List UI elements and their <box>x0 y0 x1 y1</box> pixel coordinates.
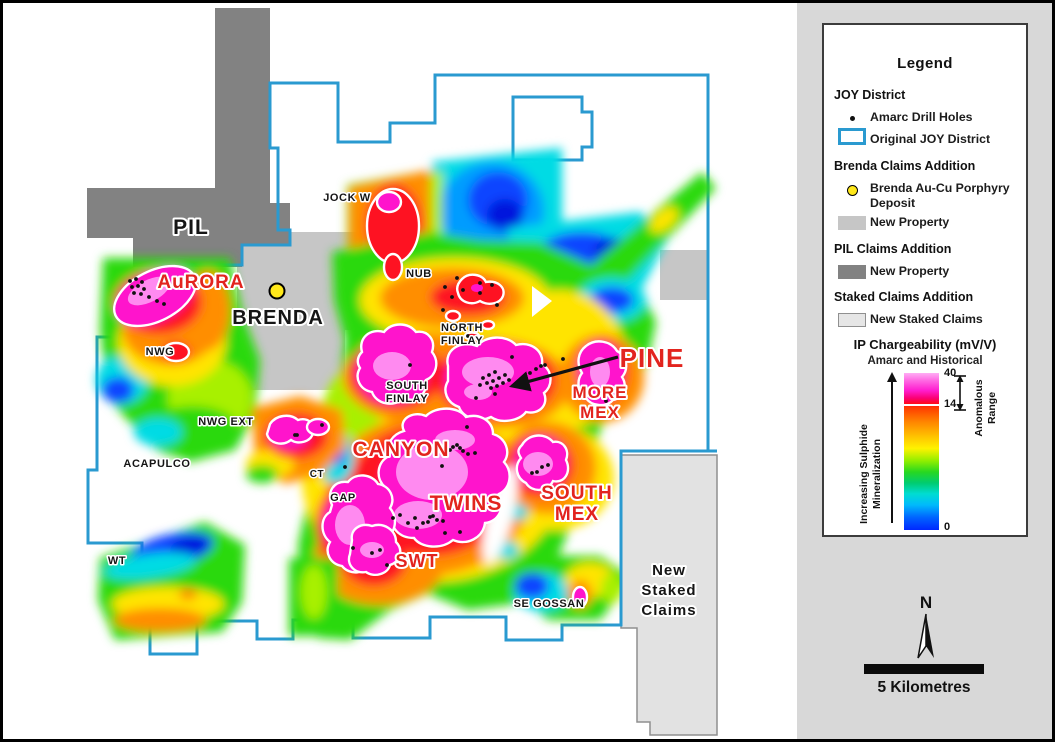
drill-hole <box>140 280 144 284</box>
legend-section-joy-district: JOY District <box>834 88 905 102</box>
map-label-se-gossan: SE GOSSAN <box>514 598 585 610</box>
drill-hole <box>128 279 132 283</box>
drill-hole <box>134 277 138 281</box>
drill-hole <box>132 291 136 295</box>
legend-item-brenda-property: New Property <box>834 215 1022 231</box>
legend-item-pil-property: New Property <box>834 264 1022 280</box>
drill-hole <box>465 425 469 429</box>
drill-hole <box>561 357 565 361</box>
drill-hole <box>495 384 499 388</box>
drill-hole <box>493 370 497 374</box>
drill-hole <box>530 471 534 475</box>
staked-claims-swatch <box>838 313 866 327</box>
drill-hole <box>162 302 166 306</box>
map-label-more-mex: MOREMEX <box>573 383 628 422</box>
drill-hole <box>295 433 299 437</box>
drill-hole <box>351 546 355 550</box>
legend-section-pil: PIL Claims Addition <box>834 242 951 256</box>
brenda-new-property-east <box>660 250 708 300</box>
drill-hole <box>378 548 382 552</box>
map-label-acapulco: ACAPULCO <box>123 458 190 470</box>
drill-hole <box>458 446 462 450</box>
map-label-gap: GAP <box>330 492 356 504</box>
mineralization-arrow-line <box>891 381 893 523</box>
drill-hole <box>535 470 539 474</box>
anomalous-threshold-line <box>904 404 939 406</box>
chargeability-colorbar <box>904 373 939 530</box>
drill-hole <box>415 526 419 530</box>
colorbar-title: IP Chargeability (mV/V) <box>824 337 1026 352</box>
drill-hole <box>534 367 538 371</box>
map-label-ct: CT <box>310 469 325 480</box>
legend-box: Legend JOY District Amarc Drill Holes Or… <box>822 23 1028 537</box>
drill-hole <box>485 381 489 385</box>
drill-hole <box>451 445 455 449</box>
legend-item-brenda-deposit: Brenda Au-Cu Porphyry Deposit <box>834 181 1022 211</box>
mineralization-arrow-head <box>887 372 897 382</box>
joy-outline-swatch <box>838 128 866 145</box>
map-label-wt: WT <box>108 555 126 567</box>
drill-hole <box>540 465 544 469</box>
drill-hole <box>130 285 134 289</box>
map-label-jock-w: JOCK W <box>323 192 371 204</box>
drill-hole <box>478 291 482 295</box>
drill-hole <box>473 451 477 455</box>
drill-hole <box>443 285 447 289</box>
drill-hole <box>495 303 499 307</box>
drill-hole <box>528 371 532 375</box>
drill-hole <box>443 531 447 535</box>
drill-hole <box>320 423 324 427</box>
map-label-nub: NUB <box>406 268 432 280</box>
drill-hole <box>391 516 395 520</box>
map-label-nwg: NWG <box>146 346 175 358</box>
map-label-pine: PINE <box>620 343 685 373</box>
brenda-property-swatch <box>838 216 866 230</box>
drill-hole <box>370 551 374 555</box>
drill-hole <box>426 520 430 524</box>
drill-hole <box>155 299 159 303</box>
drill-hole <box>136 284 140 288</box>
anomalous-range-arrow <box>953 375 967 411</box>
legend-item-joy-outline: Original JOY District <box>834 128 1022 147</box>
drill-hole <box>461 288 465 292</box>
map-label-pil: PIL <box>173 216 209 239</box>
drill-hole <box>489 386 493 390</box>
drill-hole <box>510 355 514 359</box>
drill-hole <box>478 383 482 387</box>
brenda-deposit-swatch <box>847 185 858 196</box>
map-label-swt: SWT <box>396 551 439 571</box>
colorbar-tick-0: 0 <box>944 521 950 533</box>
map-label-twins: TWINS <box>430 492 503 515</box>
map-label-south-finlay: SOUTHFINLAY <box>386 380 428 405</box>
drill-hole-swatch <box>850 116 855 121</box>
drill-hole <box>481 376 485 380</box>
drill-hole <box>478 281 482 285</box>
legend-section-staked: Staked Claims Addition <box>834 290 973 304</box>
legend-item-drill-holes: Amarc Drill Holes <box>834 110 1022 126</box>
drill-hole <box>503 373 507 377</box>
drill-hole <box>497 376 501 380</box>
drill-hole <box>466 452 470 456</box>
drill-hole <box>490 283 494 287</box>
drill-hole <box>343 465 347 469</box>
legend-title: Legend <box>824 55 1026 72</box>
map-label-brenda: BRENDA <box>232 307 324 329</box>
drill-hole <box>413 516 417 520</box>
drill-hole <box>507 378 511 382</box>
map-label-aurora: AuRORA <box>157 272 244 293</box>
drill-hole <box>406 521 410 525</box>
drill-hole <box>142 287 146 291</box>
drill-hole <box>421 521 425 525</box>
drill-hole <box>543 363 547 367</box>
anomalous-range-label: Anomalous Range <box>973 353 999 463</box>
map-label-north-finlay: NORTHFINLAY <box>441 322 483 347</box>
map-label-canyon: CANYON <box>352 438 449 461</box>
drill-hole <box>455 443 459 447</box>
drill-hole <box>450 295 454 299</box>
drill-hole <box>501 381 505 385</box>
legend-item-staked-claims: New Staked Claims <box>834 312 1022 328</box>
drill-hole <box>474 396 478 400</box>
drill-hole <box>539 364 543 368</box>
drill-hole <box>493 392 497 396</box>
drill-hole <box>385 563 389 567</box>
legend-section-brenda: Brenda Claims Addition <box>834 159 975 173</box>
mineralization-axis-label: Increasing Sulphide Mineralization <box>858 399 884 549</box>
drill-hole <box>546 463 550 467</box>
drill-hole <box>435 518 439 522</box>
drill-hole <box>461 449 465 453</box>
pil-property-swatch <box>838 265 866 279</box>
drill-hole <box>487 373 491 377</box>
screenshot-frame: PILBRENDAAuRORAJOCK WNUBNORTHFINLAYSOUTH… <box>0 0 1055 742</box>
brenda-deposit-marker <box>270 284 285 299</box>
drill-hole <box>458 530 462 534</box>
drill-hole <box>147 295 151 299</box>
drill-hole <box>408 363 412 367</box>
drill-hole <box>139 292 143 296</box>
drill-hole <box>441 308 445 312</box>
drill-hole <box>455 276 459 280</box>
drill-hole <box>398 513 402 517</box>
map-label-nwg-ext: NWG EXT <box>198 416 254 428</box>
drill-hole <box>491 379 495 383</box>
drill-hole <box>440 464 444 468</box>
drill-hole <box>441 519 445 523</box>
